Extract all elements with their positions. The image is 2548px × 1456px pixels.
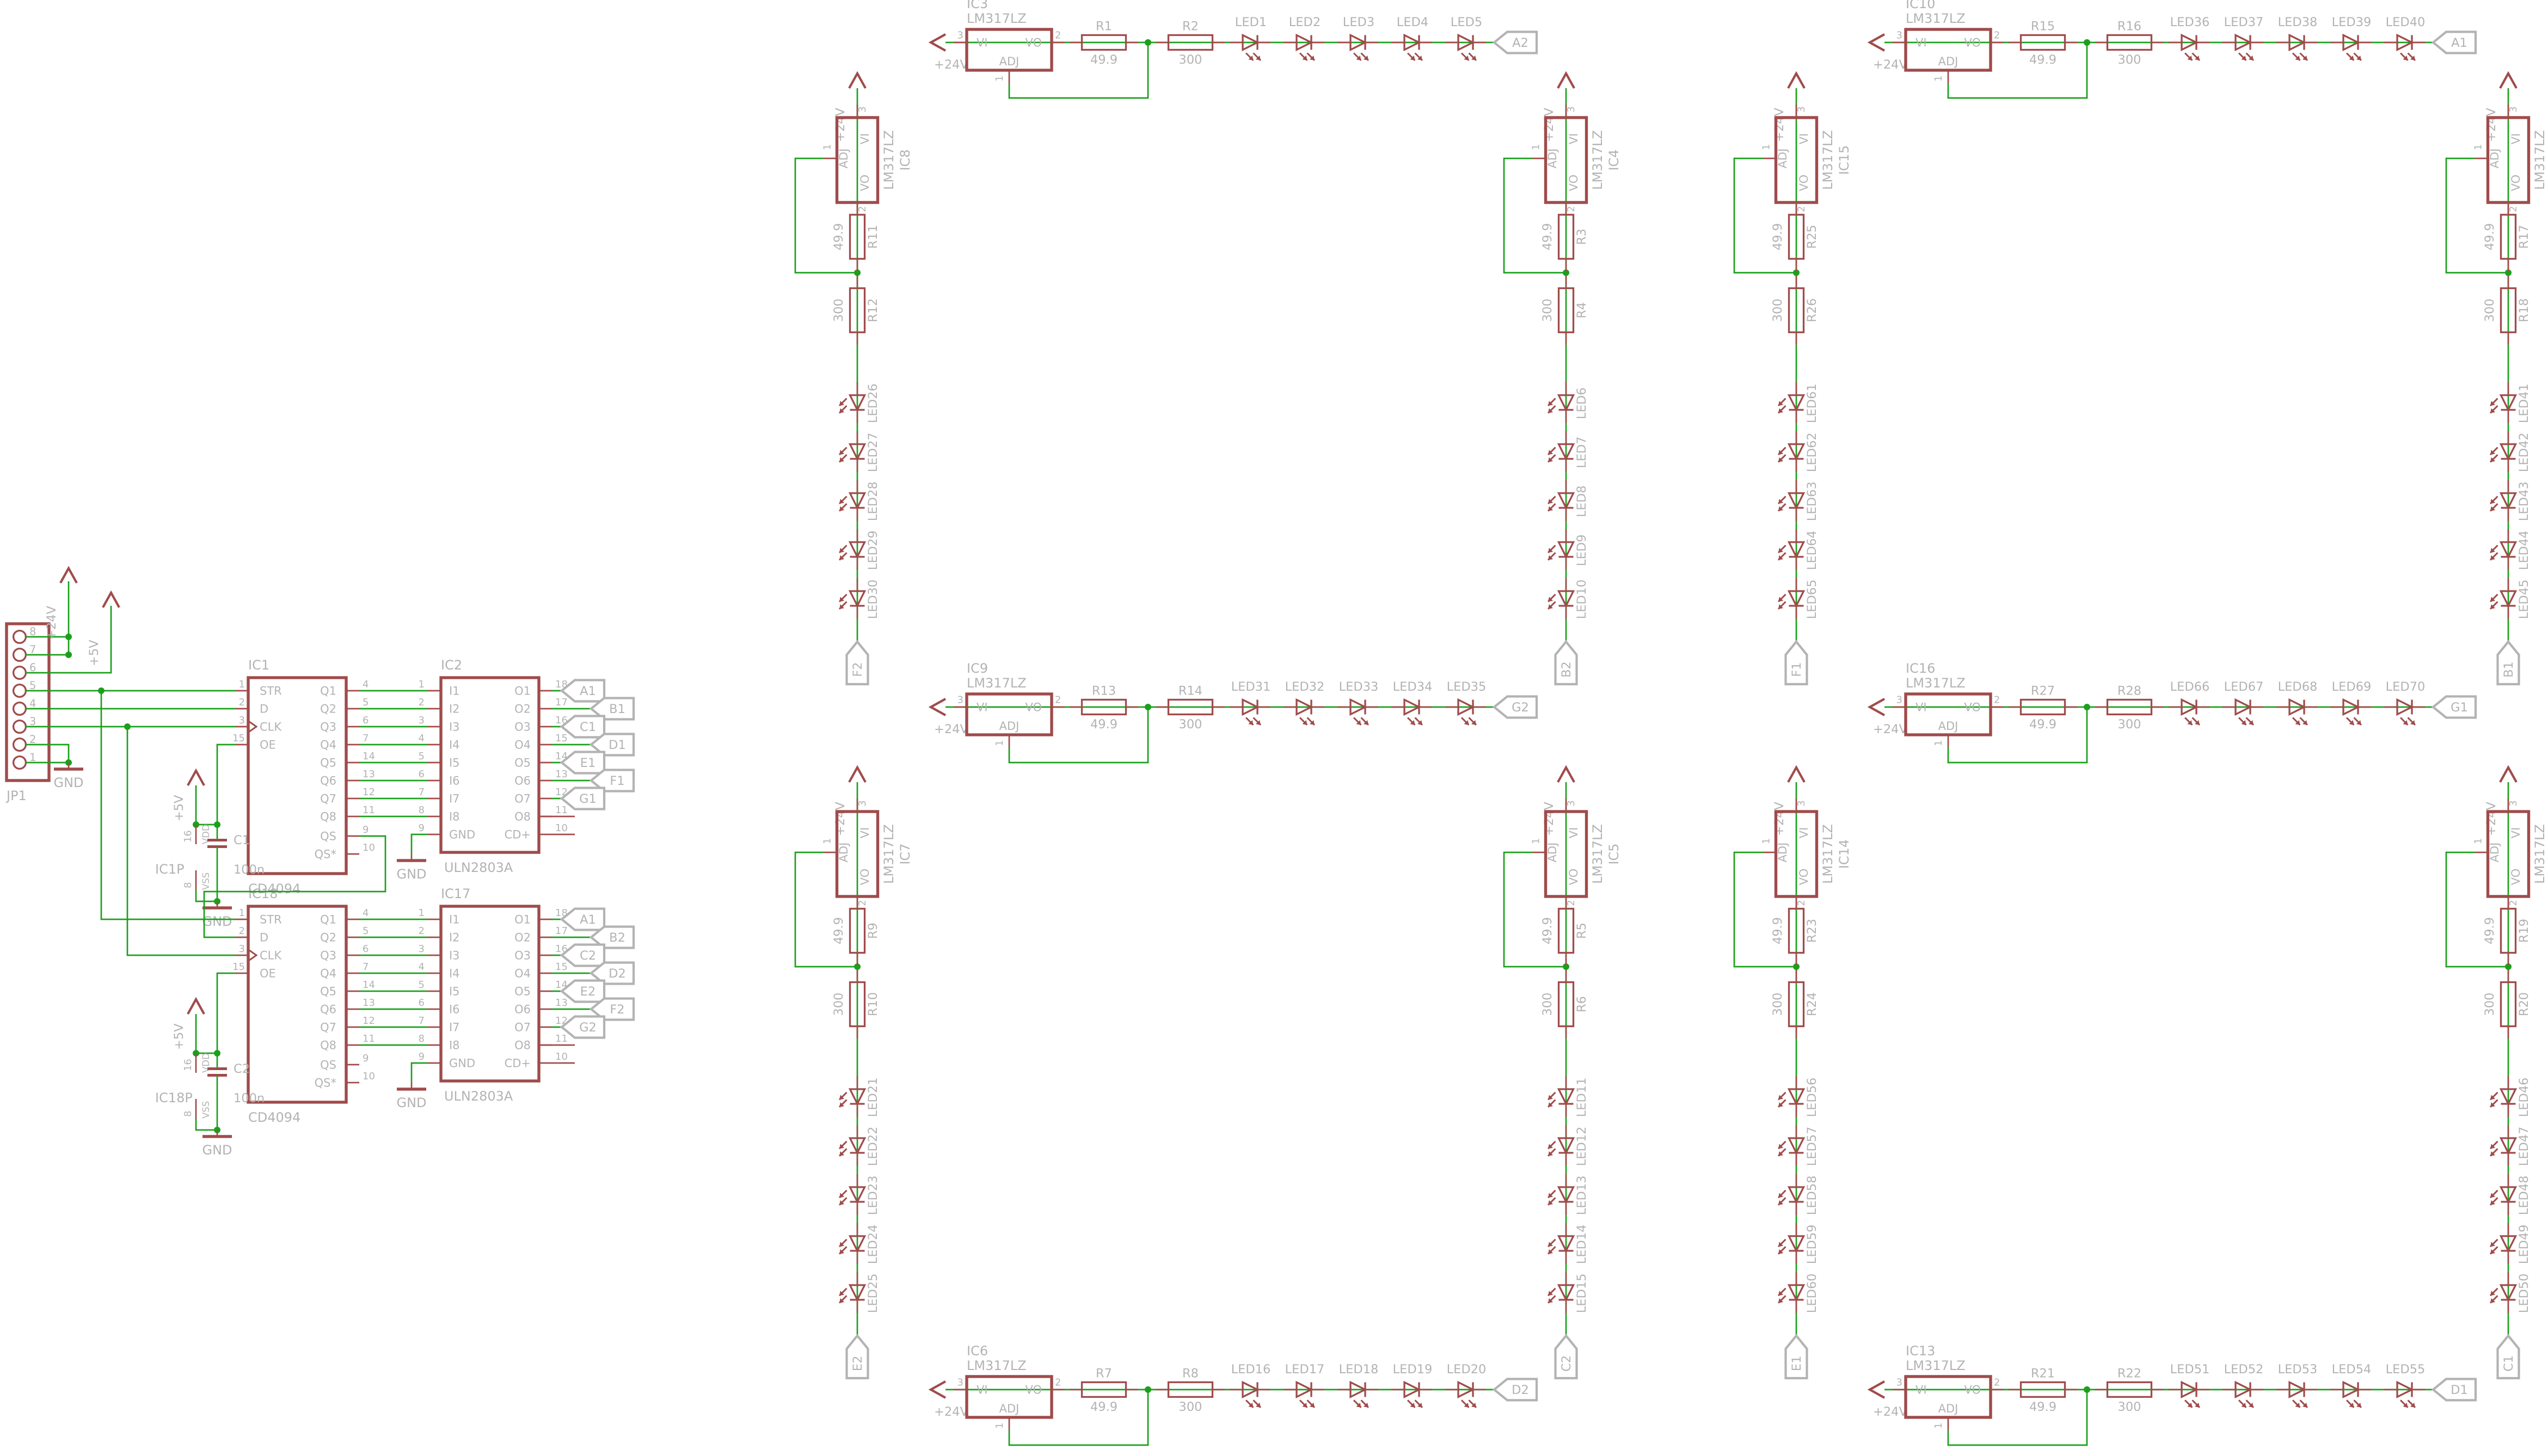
ic-part-number: LM317LZ xyxy=(967,675,1027,691)
pin-label: CLK xyxy=(260,949,282,962)
label: ADJ xyxy=(1938,55,1958,68)
label: 300 xyxy=(832,993,846,1016)
label: 300 xyxy=(1540,299,1555,322)
ic-designator: IC1P xyxy=(155,862,185,877)
led-LED45[interactable] xyxy=(2490,591,2516,609)
label: LED46 xyxy=(2517,1078,2531,1117)
led-LED33[interactable] xyxy=(1350,699,1368,724)
label: ADJ xyxy=(1938,720,1958,733)
led-LED31[interactable] xyxy=(1243,699,1261,724)
ic-designator: IC1 xyxy=(248,658,269,673)
label: 1 xyxy=(1933,76,1944,82)
led-LED34[interactable] xyxy=(1404,699,1422,724)
label: VI xyxy=(2509,133,2522,145)
led-LED36[interactable] xyxy=(2182,35,2200,60)
led-LED51[interactable] xyxy=(2182,1382,2200,1408)
pin-label: OE xyxy=(260,967,276,980)
pin-circle xyxy=(14,649,26,661)
net-flag-G2[interactable]: G2 xyxy=(1494,696,1537,717)
label: 300 xyxy=(1771,299,1785,322)
label: VI xyxy=(1567,827,1580,839)
schematic-editor-canvas[interactable]: +24VVIVOADJ321IC3LM317LZR149.9R2300LED1L… xyxy=(0,0,2548,1456)
regulator-IC13[interactable]: VIVOADJ321IC13LM317LZ xyxy=(1893,1343,2004,1430)
ic-designator: IC17 xyxy=(441,886,470,901)
label: +24V xyxy=(934,58,968,72)
led-LED57[interactable] xyxy=(1778,1138,1803,1156)
led-LED62[interactable] xyxy=(1778,444,1803,462)
label: LED36 xyxy=(2170,15,2210,29)
label: VO xyxy=(1025,701,1042,714)
pin-number: 2 xyxy=(239,925,245,937)
label: R21 xyxy=(2031,1366,2055,1380)
net-flag-C2[interactable]: C2 xyxy=(562,944,604,966)
ic-part-number: CD4094 xyxy=(248,1110,300,1125)
led-LED63[interactable] xyxy=(1778,493,1803,511)
label: LED62 xyxy=(1805,433,1819,472)
label: 3 xyxy=(857,106,868,112)
led-LED55[interactable] xyxy=(2397,1382,2415,1408)
label: LED50 xyxy=(2517,1274,2531,1313)
pin-label: Q5 xyxy=(320,985,336,998)
ic-IC18[interactable]: IC18CD40941STR2D3CLK15OE4Q15Q26Q37Q414Q5… xyxy=(232,886,375,1125)
label: 2 xyxy=(1565,900,1577,906)
label: LED41 xyxy=(2517,384,2531,423)
ic-part-number: LM317LZ xyxy=(1590,130,1605,190)
label: LED30 xyxy=(866,580,880,619)
resistor-R12[interactable]: 300R12 xyxy=(832,288,880,332)
label: LED49 xyxy=(2517,1225,2531,1264)
adj-feedback-wire xyxy=(1734,158,1796,273)
resistor-R3[interactable]: 49.9R3 xyxy=(1540,214,1589,259)
led-LED4[interactable] xyxy=(1404,35,1422,60)
label: C2 xyxy=(234,1062,250,1076)
pin-label: Q2 xyxy=(320,931,336,944)
ic-part-number: LM317LZ xyxy=(881,130,897,190)
label: R17 xyxy=(2517,225,2531,249)
net-wire xyxy=(217,745,235,825)
pin-circle xyxy=(14,703,26,715)
pin-label: D xyxy=(260,931,268,944)
label: 3 xyxy=(957,29,963,41)
led-LED23[interactable] xyxy=(839,1187,864,1205)
label: D2 xyxy=(1512,1383,1529,1397)
adj-feedback-wire xyxy=(795,158,857,273)
regulator-IC16[interactable]: VIVOADJ321IC16LM317LZ xyxy=(1893,661,2004,748)
label: 49.9 xyxy=(2029,53,2056,67)
pin-number: 15 xyxy=(232,733,245,744)
pin-label: I7 xyxy=(449,1021,460,1034)
net-flag-E2[interactable]: E2 xyxy=(562,980,604,1002)
net-wire xyxy=(101,691,235,919)
resistor-R9[interactable]: 49.9R9 xyxy=(832,908,880,953)
ic-part-number: LM317LZ xyxy=(1906,675,1966,691)
ic-designator: IC2 xyxy=(441,658,462,673)
led-LED24[interactable] xyxy=(839,1236,864,1254)
pin-label: Q5 xyxy=(320,756,336,769)
led-LED70[interactable] xyxy=(2397,699,2415,724)
resistor-R23[interactable]: 49.9R23 xyxy=(1771,908,1819,953)
led-LED6[interactable] xyxy=(1548,395,1573,413)
regulator-IC3[interactable]: VIVOADJ321IC3LM317LZ xyxy=(954,0,1065,83)
label: ADJ xyxy=(1776,149,1789,169)
label: VI xyxy=(2509,827,2522,839)
led-LED25[interactable] xyxy=(839,1285,864,1303)
label: 1 xyxy=(1761,838,1772,844)
driver-circuit-IC9: +24VVIVOADJ321IC9LM317LZR1349.9R14300LED… xyxy=(931,661,1537,763)
label: C1 xyxy=(2502,1355,2516,1372)
pin-label: D xyxy=(260,702,268,715)
pin-number: 10 xyxy=(363,1071,375,1082)
led-LED8[interactable] xyxy=(1548,493,1573,511)
led-LED59[interactable] xyxy=(1778,1236,1803,1254)
pin-number: 1 xyxy=(419,679,425,690)
led-LED14[interactable] xyxy=(1548,1236,1573,1254)
led-LED18[interactable] xyxy=(1350,1382,1368,1408)
label: 300 xyxy=(1179,1400,1202,1414)
adj-feedback-wire xyxy=(795,852,857,967)
pin-label: O4 xyxy=(514,738,531,751)
pin-number: 12 xyxy=(363,787,375,798)
led-LED27[interactable] xyxy=(839,444,864,462)
label: VI xyxy=(977,1383,988,1396)
pin-number: 13 xyxy=(363,997,375,1009)
label: ADJ xyxy=(999,1402,1020,1415)
regulator-IC6[interactable]: VIVOADJ321IC6LM317LZ xyxy=(954,1343,1065,1430)
pin-label: O7 xyxy=(514,792,531,805)
label: R11 xyxy=(866,225,880,249)
label: VI xyxy=(1915,701,1927,714)
label: LED19 xyxy=(1393,1362,1433,1377)
label: 300 xyxy=(1179,53,1202,67)
net-flag-F1[interactable]: F1 xyxy=(1786,642,1807,684)
led-LED54[interactable] xyxy=(2343,1382,2361,1408)
net-flag-E2[interactable]: E2 xyxy=(847,1336,868,1378)
label: 300 xyxy=(1179,717,1202,732)
led-LED3[interactable] xyxy=(1350,35,1368,60)
led-LED61[interactable] xyxy=(1778,395,1803,413)
led-LED12[interactable] xyxy=(1548,1138,1573,1156)
led-LED46[interactable] xyxy=(2490,1089,2516,1107)
pin-number: 4 xyxy=(419,961,425,973)
label: GND xyxy=(397,867,427,882)
led-LED21[interactable] xyxy=(839,1089,864,1107)
label: 2 xyxy=(1055,29,1061,41)
label: LED10 xyxy=(1575,580,1589,619)
led-LED10[interactable] xyxy=(1548,591,1573,609)
led-LED7[interactable] xyxy=(1548,444,1573,462)
resistor-R6[interactable]: 300R6 xyxy=(1540,982,1589,1026)
led-LED15[interactable] xyxy=(1548,1285,1573,1303)
label: 100n xyxy=(234,863,265,877)
regulator-IC10[interactable]: VIVOADJ321IC10LM317LZ xyxy=(1893,0,2004,83)
pin-number: 7 xyxy=(419,1015,425,1027)
pin-label: Q8 xyxy=(320,810,336,823)
pin-number: 3 xyxy=(29,715,36,728)
resistor-R19[interactable]: 49.9R19 xyxy=(2483,908,2531,953)
pin-number: 8 xyxy=(29,625,36,638)
power-arrow-icon xyxy=(849,73,865,88)
regulator-IC9[interactable]: VIVOADJ321IC9LM317LZ xyxy=(954,661,1065,748)
label: LED37 xyxy=(2224,15,2264,29)
pin-label: Q4 xyxy=(320,967,336,980)
net-flag-E1[interactable]: E1 xyxy=(562,752,604,773)
led-LED69[interactable] xyxy=(2343,699,2361,724)
led-LED64[interactable] xyxy=(1778,542,1803,560)
net-flag-G1[interactable]: G1 xyxy=(562,788,604,809)
label: R22 xyxy=(2117,1366,2141,1380)
resistor-R4[interactable]: 300R4 xyxy=(1540,288,1589,332)
ic-designator: IC9 xyxy=(967,661,988,676)
label: VI xyxy=(977,36,988,49)
net-flag-E1[interactable]: E1 xyxy=(1786,1336,1807,1378)
led-LED48[interactable] xyxy=(2490,1187,2516,1205)
led-LED39[interactable] xyxy=(2343,35,2361,60)
led-LED43[interactable] xyxy=(2490,493,2516,511)
led-LED19[interactable] xyxy=(1404,1382,1422,1408)
net-flag-C1[interactable]: C1 xyxy=(2497,1336,2519,1378)
label: ADJ xyxy=(837,149,850,169)
junction-dot xyxy=(2084,704,2090,710)
led-LED58[interactable] xyxy=(1778,1187,1803,1205)
led-LED67[interactable] xyxy=(2236,699,2254,724)
resistor-R5[interactable]: 49.9R5 xyxy=(1540,908,1589,953)
label: 300 xyxy=(2118,717,2141,732)
label: VO xyxy=(858,175,871,192)
net-flag-D1[interactable]: D1 xyxy=(2433,1379,2476,1400)
label: 1 xyxy=(2472,144,2484,150)
pin-number: 2 xyxy=(29,733,36,746)
resistor-R11[interactable]: 49.9R11 xyxy=(832,214,880,259)
resistor-R24[interactable]: 300R24 xyxy=(1771,982,1819,1026)
led-LED52[interactable] xyxy=(2236,1382,2254,1408)
led-LED41[interactable] xyxy=(2490,395,2516,413)
net-flag-G2[interactable]: G2 xyxy=(562,1016,604,1037)
led-LED29[interactable] xyxy=(839,542,864,560)
resistor-R18[interactable]: 300R18 xyxy=(2483,288,2531,332)
led-LED44[interactable] xyxy=(2490,542,2516,560)
led-LED28[interactable] xyxy=(839,493,864,511)
resistor-R10[interactable]: 300R10 xyxy=(832,982,880,1026)
pin-number: 5 xyxy=(363,925,369,937)
led-LED47[interactable] xyxy=(2490,1138,2516,1156)
led-LED65[interactable] xyxy=(1778,591,1803,609)
led-LED1[interactable] xyxy=(1243,35,1261,60)
label: R25 xyxy=(1805,225,1819,249)
label: R19 xyxy=(2517,919,2531,943)
pin-label: I8 xyxy=(449,1039,460,1052)
led-LED5[interactable] xyxy=(1458,35,1476,60)
label: LED5 xyxy=(1451,15,1482,29)
label: VO xyxy=(1797,175,1810,192)
label: LED48 xyxy=(2517,1176,2531,1215)
label: GND xyxy=(54,775,84,790)
led-LED66[interactable] xyxy=(2182,699,2200,724)
label: LED54 xyxy=(2332,1362,2372,1377)
pin-label: Q7 xyxy=(320,1021,336,1034)
ic-designator: IC4 xyxy=(1606,149,1622,170)
led-LED40[interactable] xyxy=(2397,35,2415,60)
label: VI xyxy=(977,701,988,714)
driver-circuit-IC13: +24VVIVOADJ321IC13LM317LZR2149.9R22300LE… xyxy=(1870,1343,2476,1445)
label: ADJ xyxy=(837,843,850,863)
label: LED32 xyxy=(1285,680,1325,694)
ic-designator: IC3 xyxy=(967,0,988,11)
pin-number: 8 xyxy=(419,804,425,816)
net-flag-A2[interactable]: A2 xyxy=(1494,32,1537,53)
driver-circuit-IC14: +24VVIVOADJ321LM317LZIC1449.9R23300R24LE… xyxy=(1734,767,1852,1378)
power-arrow-icon xyxy=(2500,73,2516,88)
pin-label: Q7 xyxy=(320,792,336,805)
driver-circuit-IC5: +24VVIVOADJ321LM317LZIC549.9R5300R6LED11… xyxy=(1504,767,1622,1378)
net-flag-B1[interactable]: B1 xyxy=(2497,642,2519,684)
label: LED17 xyxy=(1285,1362,1325,1377)
label: GND xyxy=(397,1095,427,1110)
pin-number: 1 xyxy=(419,907,425,919)
connector-JP1[interactable]: 87654321JP1 xyxy=(5,624,49,803)
led-LED2[interactable] xyxy=(1297,35,1315,60)
pin-number: 8 xyxy=(182,882,194,888)
label: 49.9 xyxy=(832,223,846,250)
ic-IC17[interactable]: IC17ULN2803A1I12I23I34I45I56I67I78I89GND… xyxy=(359,886,634,1110)
led-LED38[interactable] xyxy=(2289,35,2307,60)
led-LED13[interactable] xyxy=(1548,1187,1573,1205)
junction-dot xyxy=(65,634,72,640)
label: R14 xyxy=(1178,684,1202,698)
led-LED50[interactable] xyxy=(2490,1285,2516,1303)
pin-label: I2 xyxy=(449,702,460,715)
label: LED6 xyxy=(1575,388,1589,419)
label: 49.9 xyxy=(2029,1400,2056,1414)
label: 1 xyxy=(994,76,1005,82)
label: LED7 xyxy=(1575,437,1589,468)
led-LED60[interactable] xyxy=(1778,1285,1803,1303)
label: 300 xyxy=(1771,993,1785,1016)
pin-number: 15 xyxy=(555,733,568,744)
led-LED9[interactable] xyxy=(1548,542,1573,560)
label: LED59 xyxy=(1805,1225,1819,1264)
pin-number: 5 xyxy=(363,697,369,708)
resistor-R26[interactable]: 300R26 xyxy=(1771,288,1819,332)
resistor-R17[interactable]: 49.9R17 xyxy=(2483,214,2531,259)
label: LED20 xyxy=(1447,1362,1487,1377)
pin-number: 3 xyxy=(419,715,425,726)
power-arrow-icon xyxy=(60,568,77,583)
label: R10 xyxy=(866,992,880,1016)
net-flag-G1[interactable]: G1 xyxy=(2433,696,2476,717)
label: 1 xyxy=(2472,838,2484,844)
ic-IC1[interactable]: IC1CD40941STR2D3CLK15OE4Q15Q26Q37Q414Q51… xyxy=(232,658,375,896)
pin-label: O7 xyxy=(514,1021,531,1034)
led-LED37[interactable] xyxy=(2236,35,2254,60)
label: R9 xyxy=(866,923,880,939)
ic-IC2[interactable]: IC2ULN2803A1I12I23I34I45I56I67I78I89GNDG… xyxy=(359,658,634,882)
label: LED38 xyxy=(2278,15,2318,29)
led-LED26[interactable] xyxy=(839,395,864,413)
label: ADJ xyxy=(2488,149,2501,169)
pin-circle xyxy=(14,739,26,751)
label: R15 xyxy=(2031,19,2055,33)
led-LED42[interactable] xyxy=(2490,444,2516,462)
driver-circuit-IC4: +24VVIVOADJ321LM317LZIC449.9R3300R4LED6L… xyxy=(1504,73,1622,684)
led-LED35[interactable] xyxy=(1458,699,1476,724)
label: 3 xyxy=(1896,29,1902,41)
label: LED42 xyxy=(2517,433,2531,472)
led-LED49[interactable] xyxy=(2490,1236,2516,1254)
adj-feedback-wire xyxy=(1734,852,1796,967)
label: VO xyxy=(1025,36,1042,49)
label: VO xyxy=(1964,36,1981,49)
label: R28 xyxy=(2117,684,2141,698)
label: R1 xyxy=(1096,19,1112,33)
pin-number: 4 xyxy=(363,907,369,919)
net-flag-B2[interactable]: B2 xyxy=(1556,642,1577,684)
label: LED66 xyxy=(2170,680,2210,694)
pin-number: 2 xyxy=(419,925,425,937)
label: A1 xyxy=(2451,36,2467,50)
led-LED16[interactable] xyxy=(1243,1382,1261,1408)
net-flag-C2[interactable]: C2 xyxy=(1556,1336,1577,1378)
label: VI xyxy=(858,827,871,839)
led-LED20[interactable] xyxy=(1458,1382,1476,1408)
ic-part-number: LM317LZ xyxy=(1590,824,1605,884)
ic-designator: IC8 xyxy=(898,149,913,170)
led-LED32[interactable] xyxy=(1297,699,1315,724)
pin-label: I4 xyxy=(449,967,460,980)
label: ADJ xyxy=(2488,843,2501,863)
label: LED58 xyxy=(1805,1176,1819,1215)
led-LED30[interactable] xyxy=(839,591,864,609)
net-flag-A1[interactable]: A1 xyxy=(562,908,604,930)
led-LED53[interactable] xyxy=(2289,1382,2307,1408)
label: 3 xyxy=(957,1377,963,1388)
label: R27 xyxy=(2031,684,2055,698)
label: 2 xyxy=(1565,206,1577,212)
pin-number: 7 xyxy=(363,961,369,973)
label: 300 xyxy=(2483,299,2497,322)
led-LED17[interactable] xyxy=(1297,1382,1315,1408)
ic-part-number: LM317LZ xyxy=(967,1358,1027,1373)
label: LED68 xyxy=(2278,680,2318,694)
led-LED68[interactable] xyxy=(2289,699,2307,724)
label: R18 xyxy=(2517,298,2531,322)
label: ADJ xyxy=(1546,843,1559,863)
pin-label: Q6 xyxy=(320,774,336,787)
pin-number: 13 xyxy=(555,997,568,1009)
pin-label: GND xyxy=(449,1056,475,1070)
label: LED26 xyxy=(866,384,880,423)
resistor-R20[interactable]: 300R20 xyxy=(2483,982,2531,1026)
led-LED56[interactable] xyxy=(1778,1089,1803,1107)
ic-part-number: LM317LZ xyxy=(881,824,897,884)
label: 300 xyxy=(2118,1400,2141,1414)
pin-label: O4 xyxy=(514,967,531,980)
net-flag-A1[interactable]: A1 xyxy=(562,680,604,701)
resistor-R25[interactable]: 49.9R25 xyxy=(1771,214,1819,259)
net-flag-A1[interactable]: A1 xyxy=(2433,32,2476,53)
net-flag-D2[interactable]: D2 xyxy=(1494,1379,1537,1400)
label: R4 xyxy=(1575,302,1589,318)
label: 3 xyxy=(1796,106,1807,112)
net-flag-C1[interactable]: C1 xyxy=(562,716,604,737)
led-LED11[interactable] xyxy=(1548,1089,1573,1107)
label: +24V xyxy=(934,722,968,736)
led-LED22[interactable] xyxy=(839,1138,864,1156)
pin-number: 13 xyxy=(555,769,568,780)
junction-dot xyxy=(1145,39,1151,46)
label: +24V xyxy=(45,606,59,640)
net-flag-F2[interactable]: F2 xyxy=(847,642,868,684)
pin-label: VSS xyxy=(201,873,211,890)
